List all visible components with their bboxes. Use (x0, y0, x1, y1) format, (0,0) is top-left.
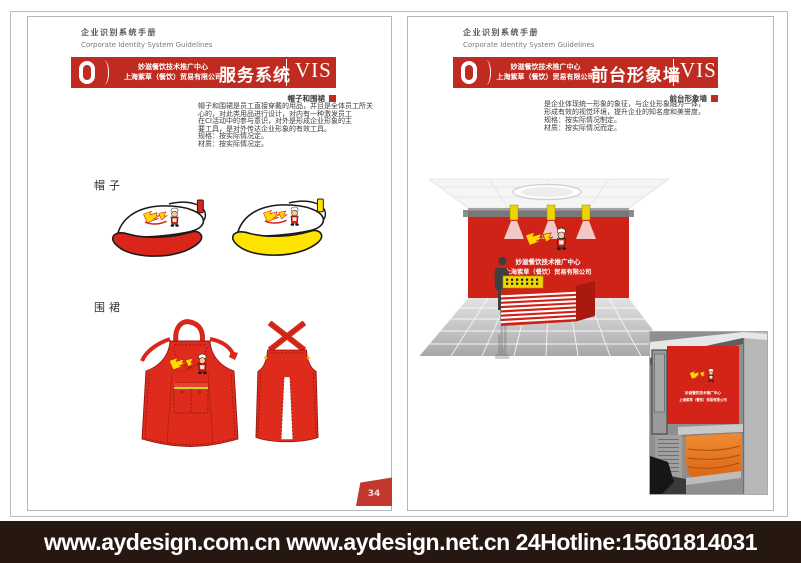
desk-sign (503, 276, 543, 288)
banner-divider (673, 59, 674, 86)
apron-back-illustration (254, 320, 320, 446)
arc-icon (481, 60, 491, 85)
hat-label: 帽子 (94, 177, 124, 193)
banner-divider (286, 59, 287, 86)
vis-label: VIS (295, 58, 332, 83)
red-square-marker-icon (329, 95, 336, 102)
desk-side-panel (576, 281, 595, 322)
photo-company-line1: 妙滋餐饮技术推广中心 (685, 390, 721, 395)
visor-yellow-illustration (224, 193, 342, 264)
section-banner: 妙滋餐饮技术推广中心 上海紫草（餐饮）贸易有限公司 服务系统 VIS (71, 57, 336, 88)
company-name: 妙滋餐饮技术推广中心 上海紫草（餐饮）贸易有限公司 (493, 62, 598, 82)
photo-company-line2: 上海紫草（餐饮）贸易有限公司 (679, 397, 727, 402)
footer-banner: www.aydesign.com.cn www.aydesign.net.cn … (0, 521, 801, 563)
wall-company-line1: 妙滋餐饮技术推广中心 (516, 257, 582, 266)
logo-placeholder-icon (461, 61, 477, 84)
company-name: 妙滋餐饮技术推广中心 上海紫草（餐饮）贸易有限公司 (113, 62, 233, 82)
apron-front-illustration (134, 317, 246, 447)
footer-text: www.aydesign.com.cn www.aydesign.net.cn … (44, 529, 757, 556)
page-number-tab: 34 (356, 476, 392, 506)
reception-room-illustration: 妙滋餐饮技术推广中心 上海紫草（餐饮）贸易有限公司 (416, 175, 678, 359)
ceiling (429, 179, 669, 208)
body-text: 是企业体现统一形象的象征，与企业形象融为一体， 形成有效的视觉环境，提升企业的知… (544, 101, 744, 133)
logo-placeholder-icon (79, 61, 95, 84)
apron-label: 围裙 (94, 299, 124, 315)
manual-title-zh: 企业识别系统手册 (463, 27, 539, 38)
spread: 企业识别系统手册 Corporate Identity System Guide… (0, 0, 801, 563)
manual-title-zh: 企业识别系统手册 (81, 27, 157, 38)
photo-right-wall (743, 332, 767, 494)
section-title: 前台形象墙 (591, 61, 681, 86)
visor-red-illustration (104, 194, 222, 265)
section-banner: 妙滋餐饮技术推广中心 上海紫草（餐饮）贸易有限公司 前台形象墙 VIS (453, 57, 718, 88)
arc-icon (99, 60, 109, 85)
left-page: 企业识别系统手册 Corporate Identity System Guide… (27, 16, 392, 511)
body-text: 帽子和围裙是员工直接穿戴的用品，并且是全体员工所关 心的，对此类用品进行设计，对… (198, 103, 388, 149)
vis-label: VIS (680, 58, 717, 83)
wall-company-line2: 上海紫草（餐饮）贸易有限公司 (505, 268, 592, 276)
right-page: 企业识别系统手册 Corporate Identity System Guide… (407, 16, 774, 511)
reception-photo: 妙滋餐饮技术推广中心 上海紫草（餐饮）贸易有限公司 (650, 332, 767, 494)
manual-title-en: Corporate Identity System Guidelines (81, 41, 212, 49)
manual-title-en: Corporate Identity System Guidelines (463, 41, 594, 49)
photo-red-wall (667, 346, 739, 424)
photo-inset: 妙滋餐饮技术推广中心 上海紫草（餐饮）贸易有限公司 (649, 331, 768, 495)
section-title: 服务系统 (219, 61, 291, 86)
